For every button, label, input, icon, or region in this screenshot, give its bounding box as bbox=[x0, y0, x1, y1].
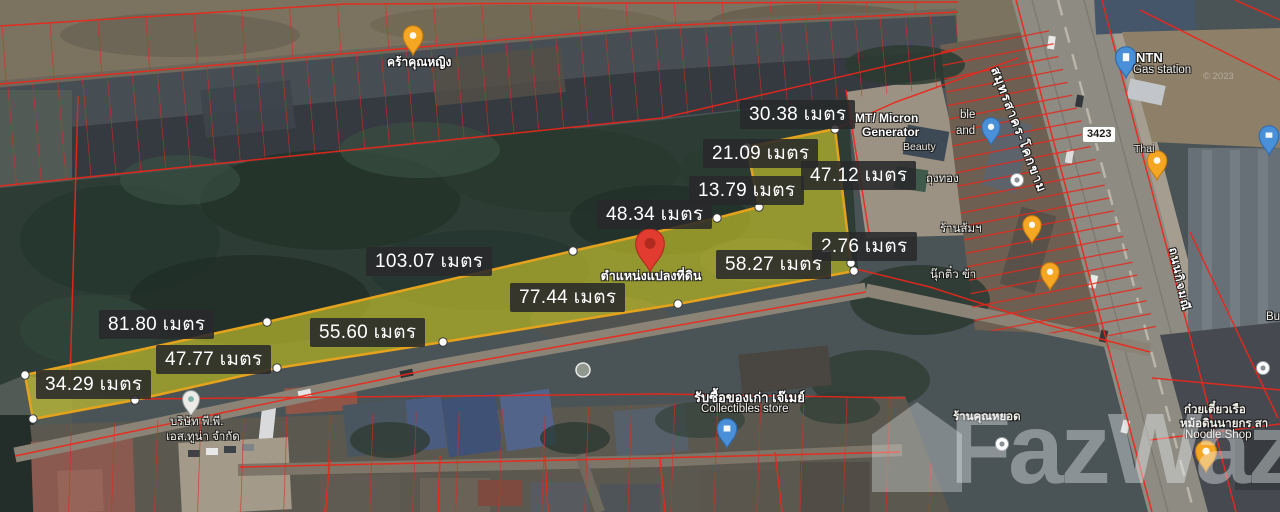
place-label-company-line2[interactable]: เอส.ทูน่า จำกัด bbox=[166, 428, 240, 446]
measurement-label-103-07: 103.07 เมตร bbox=[366, 247, 492, 276]
place-label-noodle-line3[interactable]: Noodle Shop bbox=[1185, 429, 1252, 441]
place-label-collectibles-line2[interactable]: Collectibles store bbox=[701, 403, 789, 415]
measurement-label-47-12: 47.12 เมตร bbox=[801, 161, 916, 190]
plot-pin-caption: ตำแหน่งแปลงที่ดิน bbox=[594, 266, 708, 286]
measurement-label-58-27: 58.27 เมตร bbox=[716, 250, 831, 279]
place-label-thai-fragment[interactable]: Thai bbox=[1134, 143, 1154, 155]
minor-place-pin[interactable] bbox=[996, 438, 1009, 451]
measurement-label-81-80: 81.80 เมตร bbox=[99, 310, 214, 339]
minor-place-pin[interactable] bbox=[1011, 174, 1024, 187]
measurement-label-34-29: 34.29 เมตร bbox=[36, 370, 151, 399]
place-label-mt-micron-line3: Beauty bbox=[903, 141, 936, 153]
place-label-ntn-type[interactable]: Gas station bbox=[1133, 64, 1191, 76]
measurement-label-77-44: 77.44 เมตร bbox=[510, 283, 625, 312]
measurement-label-55-60: 55.60 เมตร bbox=[310, 318, 425, 347]
place-label-fragment-and[interactable]: and bbox=[956, 125, 975, 137]
place-label-ran-khun-yod[interactable]: ร้านคุณหยอด bbox=[953, 408, 1021, 426]
place-label-bu-fragment[interactable]: Bu bbox=[1266, 311, 1280, 323]
measurement-label-48-34: 48.34 เมตร bbox=[597, 200, 712, 229]
satellite-map-viewport[interactable]: 30.38 เมตร 21.09 เมตร 47.12 เมตร 13.79 เ… bbox=[0, 0, 1280, 512]
place-label-kra-khunying[interactable]: คร้าคุณหญิง bbox=[387, 53, 451, 72]
place-label-mt-micron-line1[interactable]: MT/ Micron bbox=[855, 111, 918, 125]
imagery-attribution: © 2023 bbox=[1203, 71, 1234, 82]
minor-place-pin[interactable] bbox=[1257, 362, 1270, 375]
place-label-nuk-tim[interactable]: นุ๊กติ๋ว ข้า bbox=[930, 266, 976, 284]
place-label-thung-thong[interactable]: ถุงทอง bbox=[926, 170, 959, 188]
place-label-ran-som[interactable]: ร้านส้มฯ bbox=[940, 220, 982, 238]
measurement-label-30-38: 30.38 เมตร bbox=[740, 100, 855, 129]
measurement-label-47-77: 47.77 เมตร bbox=[156, 345, 271, 374]
place-label-mt-micron-line2[interactable]: Generator bbox=[862, 125, 919, 139]
place-label-ntn-name[interactable]: NTN bbox=[1136, 50, 1163, 65]
route-number-sign[interactable]: 3423 bbox=[1082, 126, 1116, 143]
place-label-fragment-ble[interactable]: ble bbox=[960, 109, 975, 121]
